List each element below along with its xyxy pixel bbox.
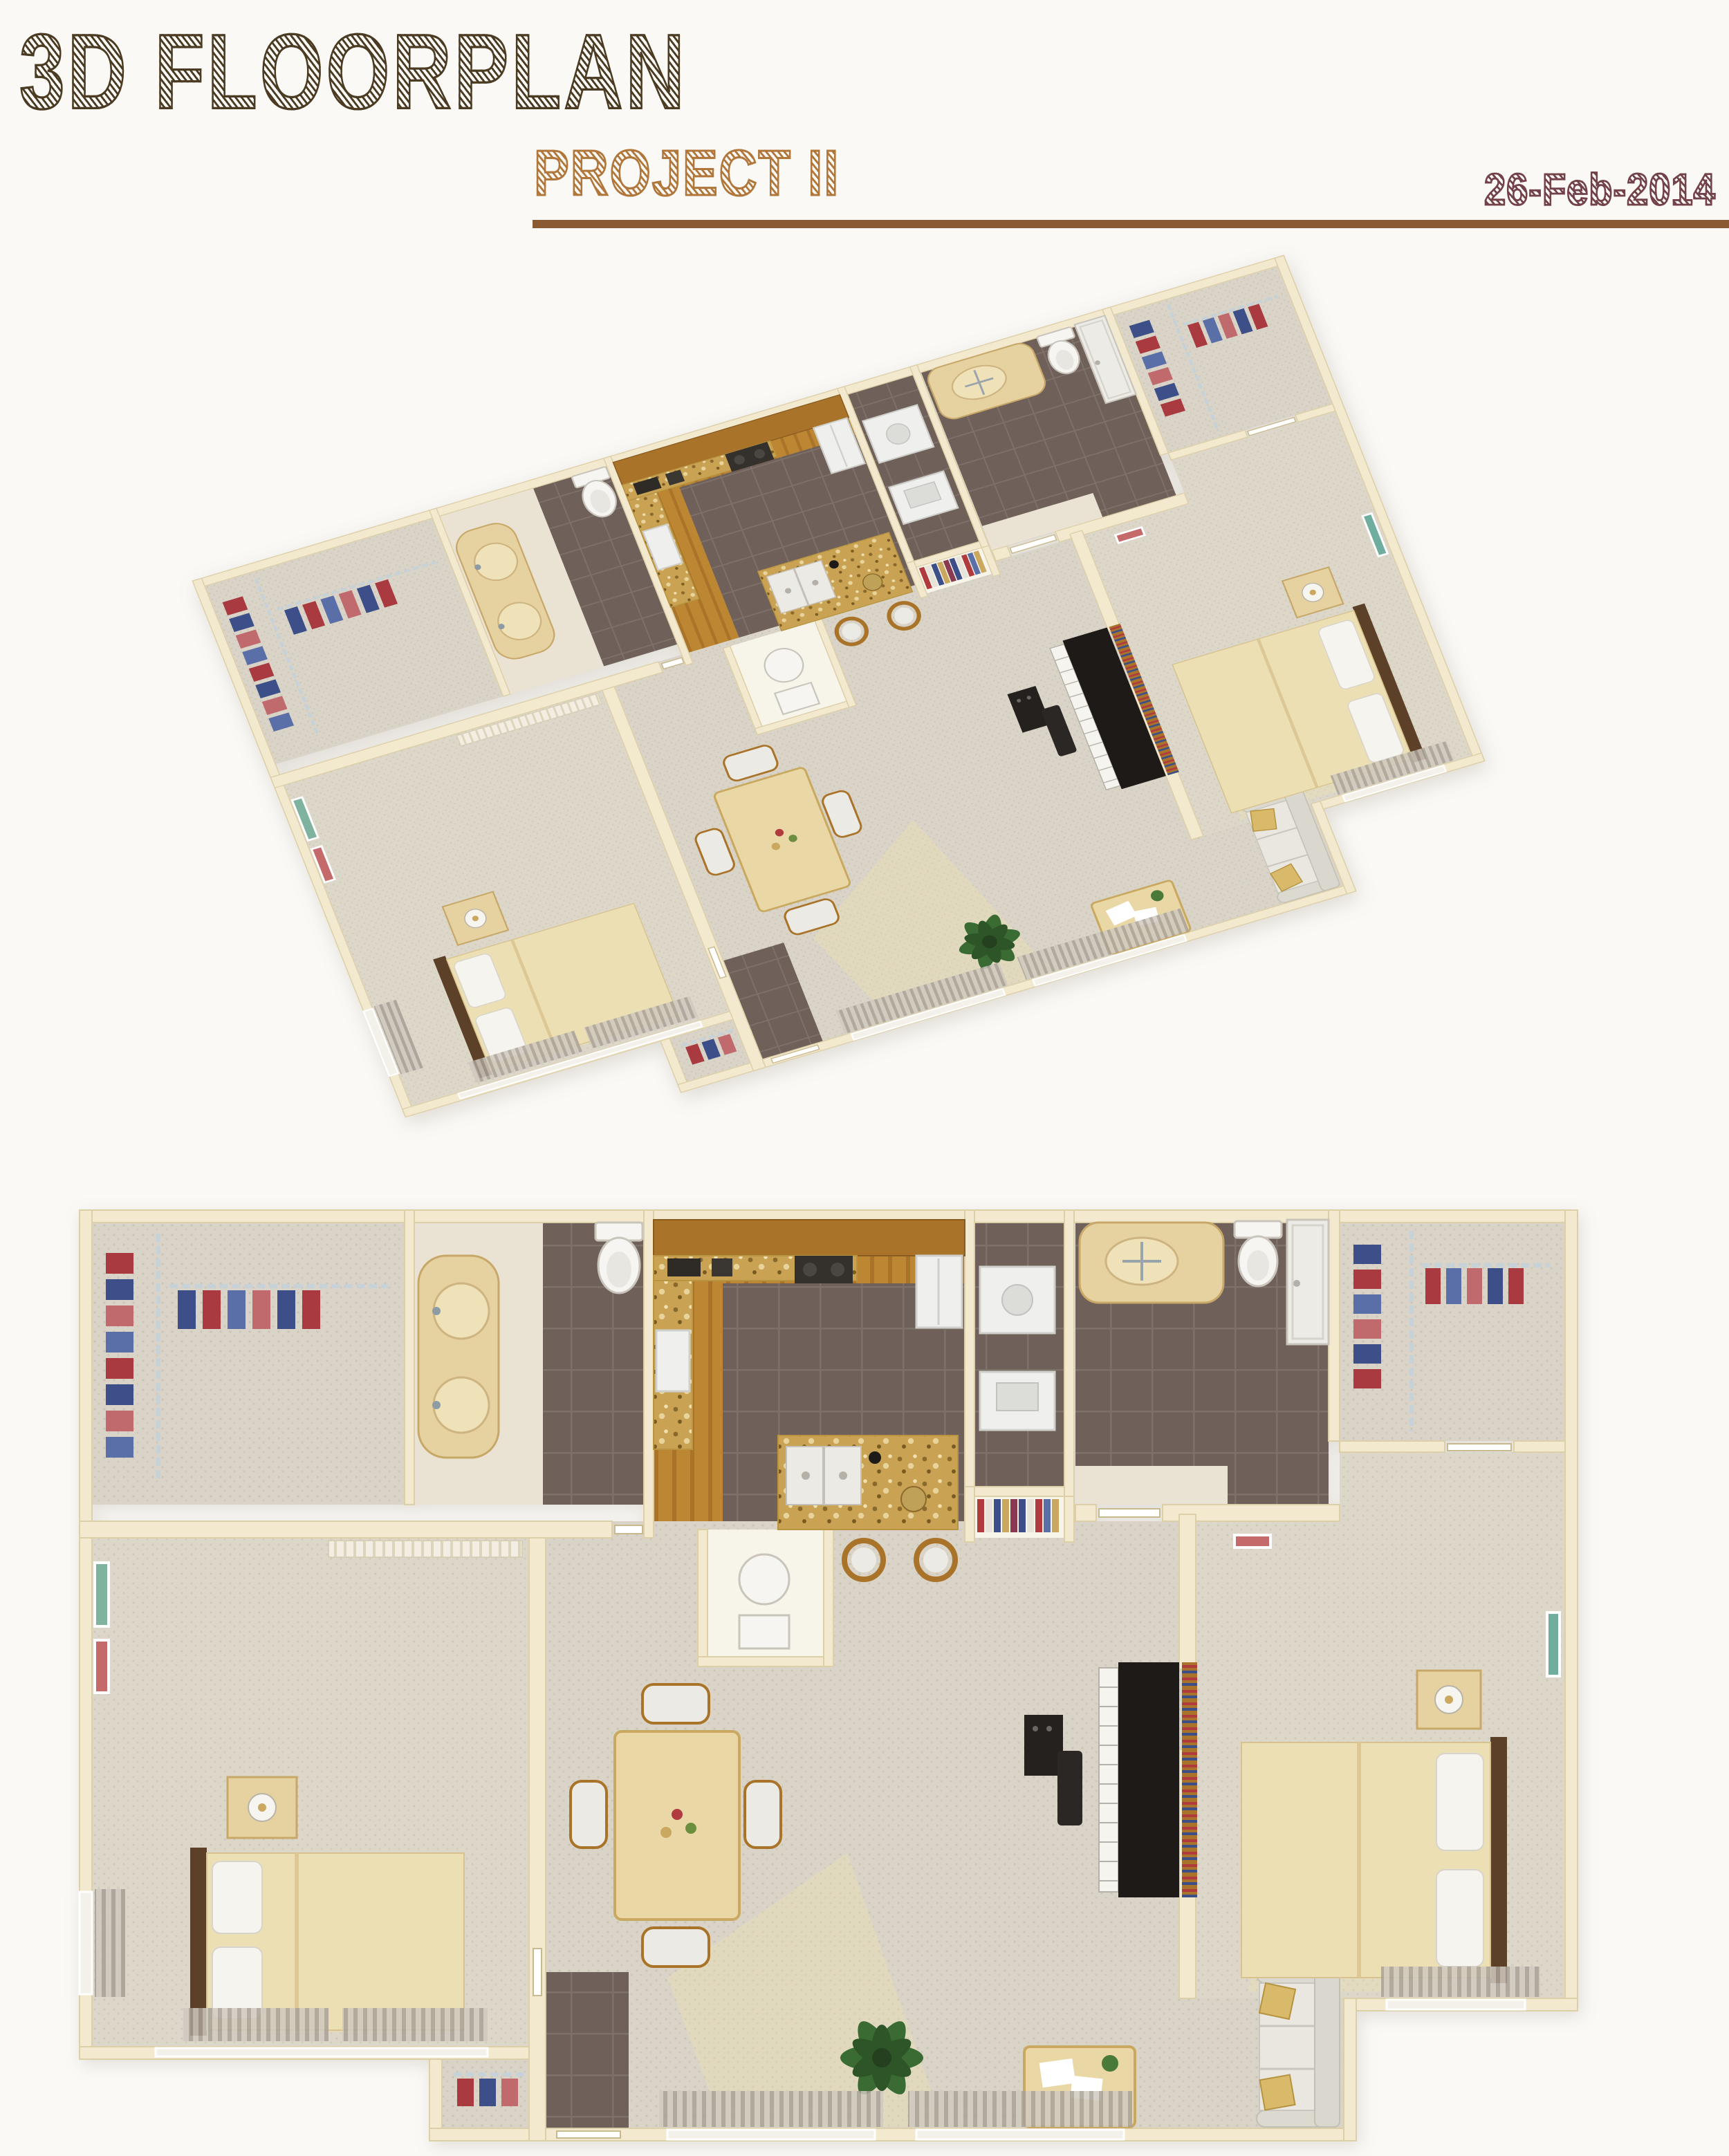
project-subtitle: PROJECT II <box>534 137 840 210</box>
divider-rule <box>533 220 1729 228</box>
date-label: 26-Feb-2014 <box>1484 163 1716 215</box>
page-title: 3D FLOORPLAN <box>19 11 687 133</box>
floorplan-top-view <box>73 1203 1601 2156</box>
page: 3D FLOORPLAN PROJECT II 26-Feb-2014 <box>0 0 1729 2156</box>
floorplan-3d-view <box>118 239 1598 1186</box>
